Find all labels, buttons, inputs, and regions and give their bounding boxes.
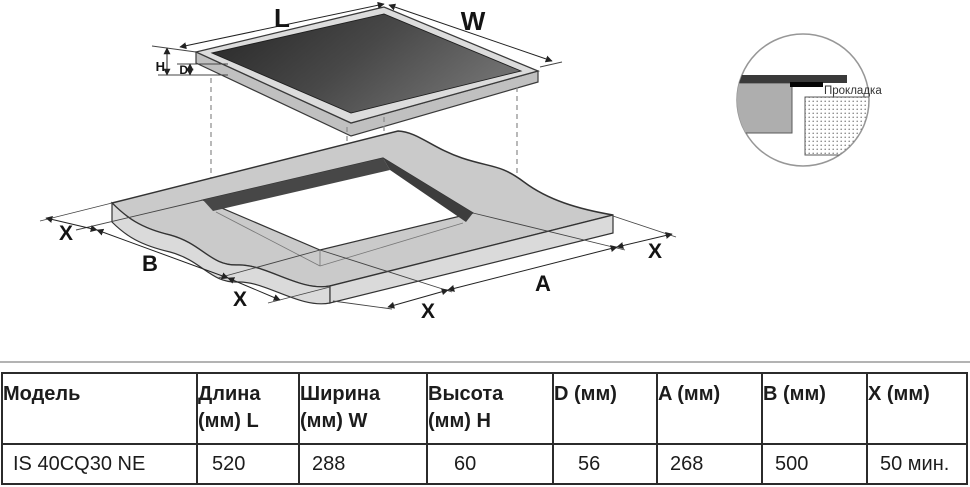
cell-a: 268 [657,444,762,484]
inset-cooktop-body [731,83,792,133]
column-header-height: Высота (мм) H [427,373,553,444]
height-top-extension [152,46,196,52]
inset-countertop-section [805,97,870,155]
label-B: B [142,251,158,276]
cell-x: 50 мин. [867,444,967,484]
column-header-length: Длина (мм) L [197,373,299,444]
cell-height: 60 [427,444,553,484]
cell-length: 520 [197,444,299,484]
detail-inset: Прокладка [731,34,882,166]
label-A: A [535,271,551,296]
column-header-width: Ширина (мм) W [299,373,427,444]
installation-diagram: L W H D [0,0,970,365]
rail-outer-right [613,216,676,237]
column-header-b: B (мм) [762,373,867,444]
label-X-right: X [648,240,662,263]
cell-width: 288 [299,444,427,484]
column-header-d: D (мм) [553,373,657,444]
installation-sheet: L W H D [0,0,970,487]
dimension-W-extension [540,62,562,67]
cell-model: IS 40CQ30 NE [2,444,197,484]
inset-glass-panel [731,75,847,83]
rail-outer-left [40,203,112,221]
cell-d: 56 [553,444,657,484]
label-X-left: X [59,222,73,245]
column-header-model: Модель [2,373,197,444]
label-L: L [274,3,290,33]
inset-gasket [790,82,823,87]
table-row: IS 40CQ30 NE 520 288 60 56 268 500 50 ми… [2,444,967,484]
cooktop-top-view: L W H D [152,3,562,136]
gasket-label: Прокладка [824,85,882,97]
table-header-row: Модель Длина (мм) L Ширина (мм) W Высота… [2,373,967,444]
dimension-X-right-line [617,234,672,247]
cell-b: 500 [762,444,867,484]
countertop-cutout-view: X B X X A X [40,131,676,323]
label-W: W [461,6,486,36]
rail-outer-front-right [333,301,392,309]
label-H: H [156,59,165,74]
label-D: D [179,63,188,77]
label-X-front-right: X [421,300,435,323]
separator-line [0,361,970,363]
label-X-front-left: X [233,288,247,311]
spec-table: Модель Длина (мм) L Ширина (мм) W Высота… [1,372,968,485]
column-header-a: A (мм) [657,373,762,444]
dimension-X-front-right-line [388,290,448,307]
column-header-x: X (мм) [867,373,967,444]
